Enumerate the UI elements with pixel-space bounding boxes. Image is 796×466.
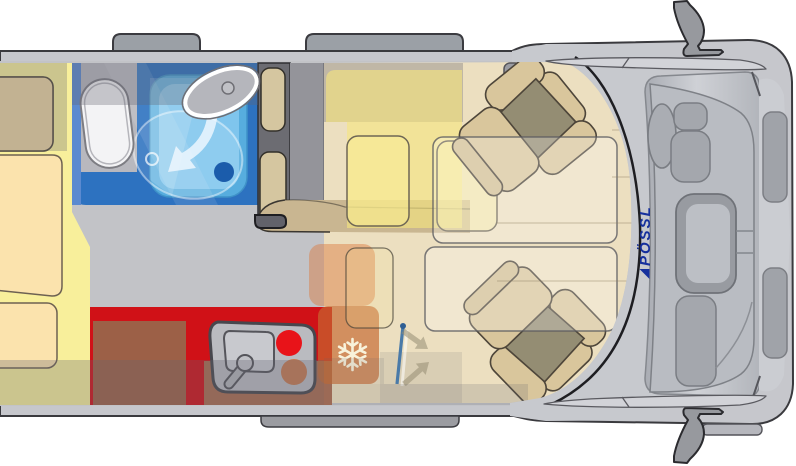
svg-text:PÖSSL: PÖSSL	[637, 205, 654, 266]
